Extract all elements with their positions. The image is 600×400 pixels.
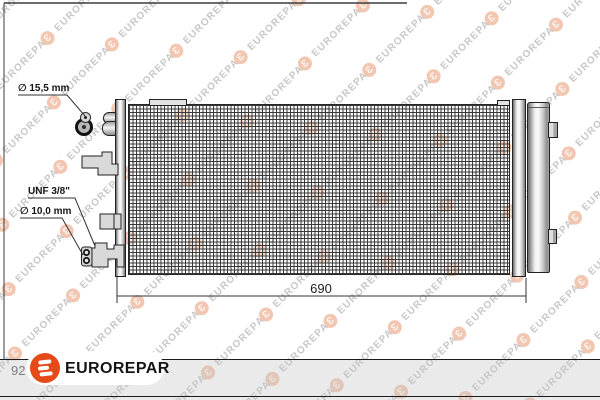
- condenser-drawing: [0, 0, 600, 400]
- port-mounting-hole: [84, 116, 87, 119]
- drier-bracket-lower: [548, 229, 557, 244]
- port-fitting-center: [82, 125, 86, 129]
- brand-name: EUROREPAR: [65, 361, 170, 377]
- receiver-drier-cap-line: [528, 107, 549, 108]
- condenser-core-grid: [128, 104, 510, 275]
- dimension-width-value: 690: [291, 281, 351, 296]
- right-header-tank: [512, 99, 526, 277]
- annotation-bottom-fitting-diameter: ∅ 10,0 mm: [20, 206, 71, 217]
- left-header-tank: [115, 99, 126, 277]
- annotation-top-fitting-diameter: ∅ 15,5 mm: [18, 83, 69, 94]
- top-mount-plate-left: [149, 99, 187, 106]
- top-mount-plate-right: [497, 100, 510, 106]
- receiver-drier: [527, 102, 550, 273]
- drier-bracket-upper: [548, 122, 558, 138]
- port-mounting-eye: [80, 112, 91, 123]
- annotation-thread-size: UNF 3/8": [28, 186, 70, 197]
- page-number: 92: [11, 363, 25, 378]
